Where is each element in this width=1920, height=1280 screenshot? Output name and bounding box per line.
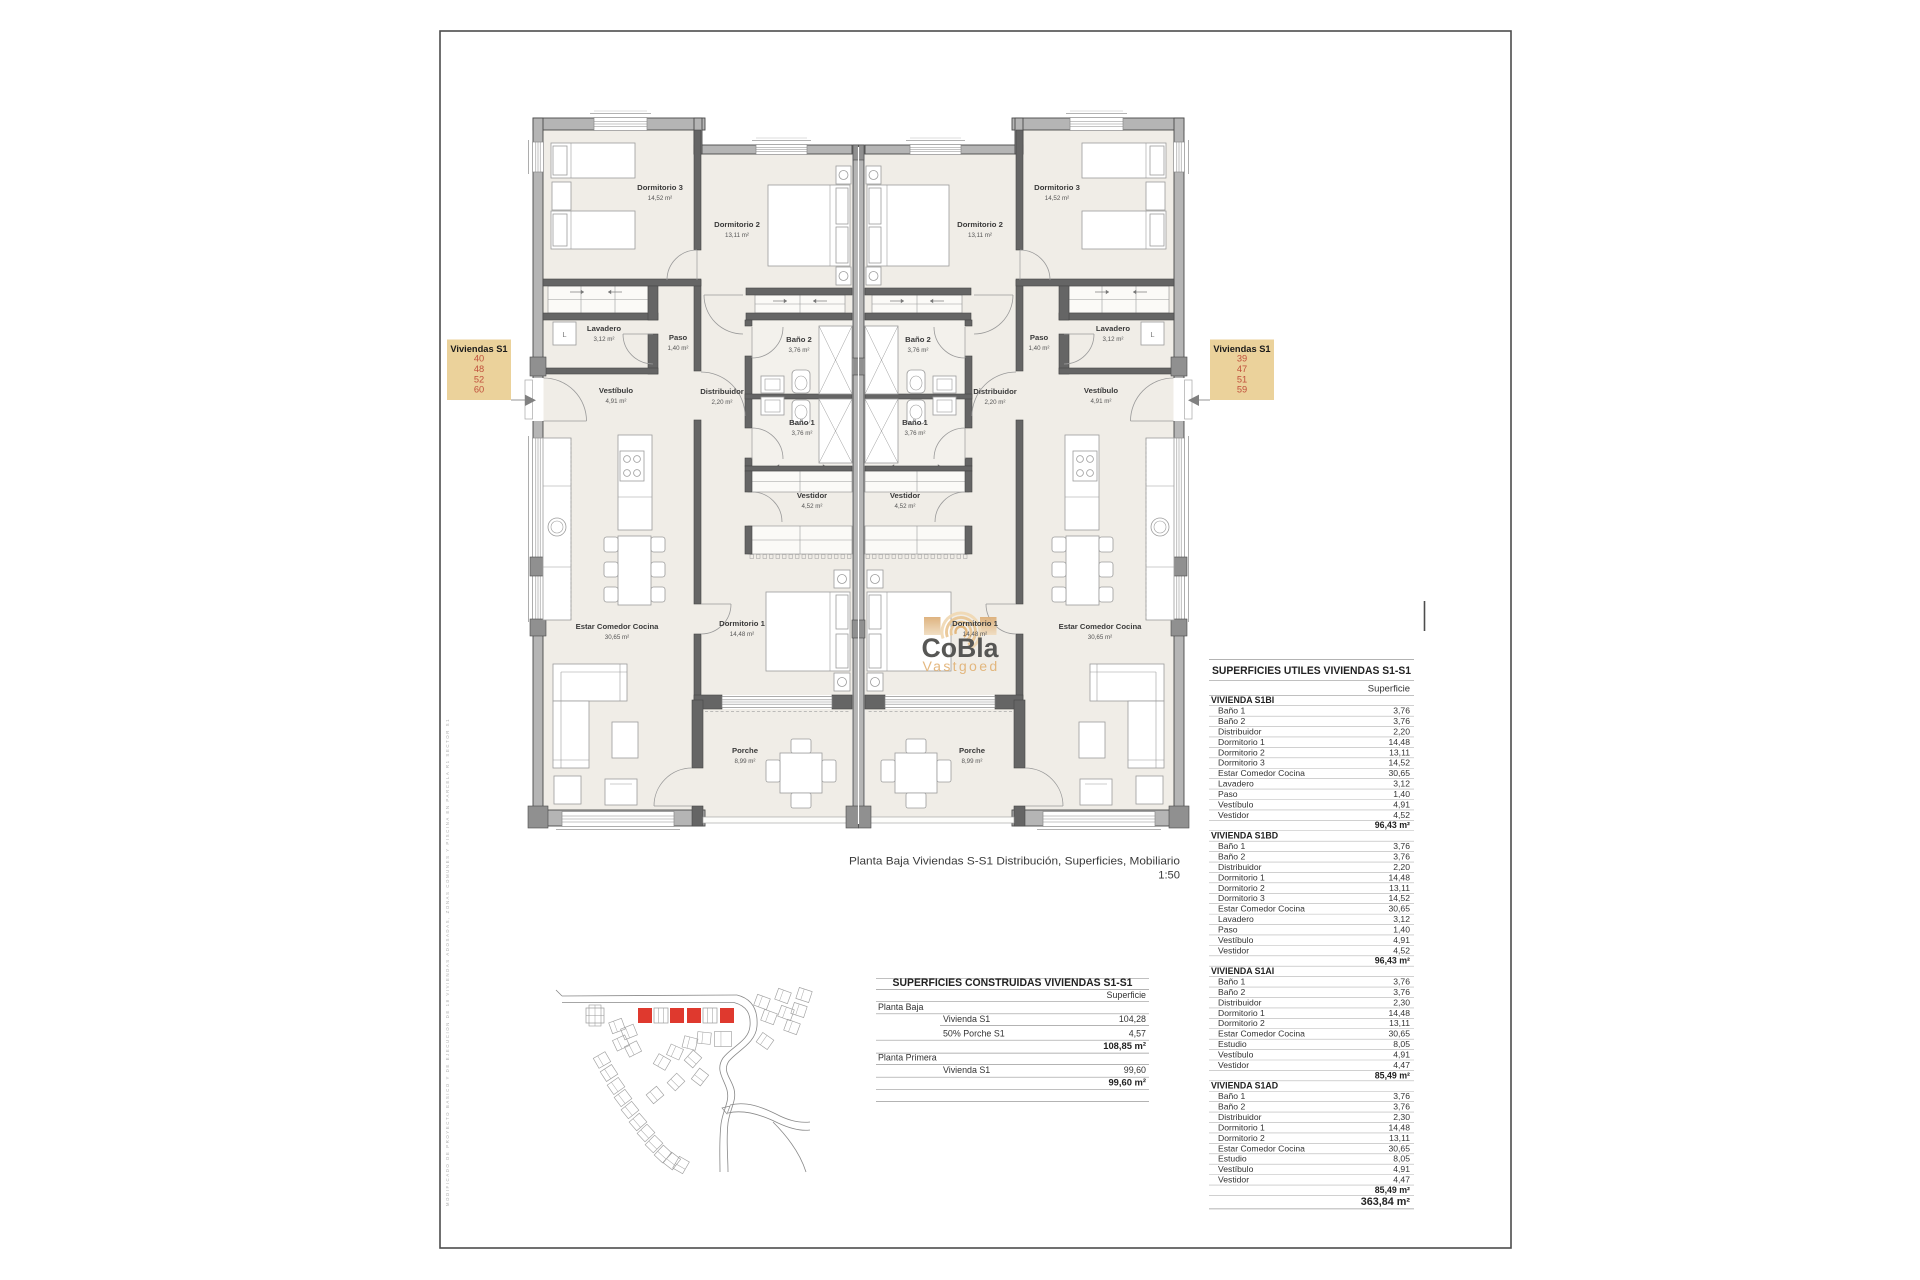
svg-text:14,48 m²: 14,48 m²	[730, 631, 754, 638]
svg-text:8,99 m²: 8,99 m²	[962, 758, 983, 765]
svg-text:3,76 m²: 3,76 m²	[905, 430, 926, 437]
svg-text:4,52 m²: 4,52 m²	[895, 503, 916, 510]
svg-text:Dormitorio 1: Dormitorio 1	[1218, 1008, 1265, 1018]
svg-text:Distribuidor: Distribuidor	[700, 387, 744, 396]
svg-text:L: L	[1150, 330, 1154, 339]
svg-text:1,40: 1,40	[1393, 789, 1410, 799]
svg-text:Vestidor: Vestidor	[1218, 810, 1249, 820]
svg-text:Estudio: Estudio	[1218, 1154, 1247, 1164]
svg-text:13,11: 13,11	[1389, 1018, 1410, 1028]
svg-text:4,91: 4,91	[1393, 1164, 1410, 1174]
svg-text:4,57: 4,57	[1129, 1028, 1146, 1038]
svg-text:4,52: 4,52	[1393, 945, 1410, 955]
svg-text:Superficie: Superficie	[1107, 990, 1147, 1000]
svg-text:Vestidor: Vestidor	[1218, 1175, 1249, 1185]
svg-text:Viviendas S1: Viviendas S1	[1213, 344, 1270, 354]
svg-text:Estar Comedor Cocina: Estar Comedor Cocina	[576, 622, 660, 631]
svg-text:3,76 m²: 3,76 m²	[792, 430, 813, 437]
svg-text:Baño 2: Baño 2	[1218, 1102, 1245, 1112]
svg-text:Lavadero: Lavadero	[1096, 324, 1130, 333]
svg-text:3,76: 3,76	[1393, 841, 1410, 851]
svg-text:30,65: 30,65	[1388, 904, 1410, 914]
svg-text:VIVIENDA S1BI: VIVIENDA S1BI	[1211, 695, 1274, 705]
svg-text:96,43 m²: 96,43 m²	[1375, 956, 1410, 966]
svg-text:3,12: 3,12	[1393, 779, 1410, 789]
svg-text:Vestíbulo: Vestíbulo	[599, 386, 633, 395]
svg-text:Superficie: Superficie	[1368, 684, 1410, 695]
svg-text:Vestíbulo: Vestíbulo	[1218, 935, 1254, 945]
svg-text:14,48: 14,48	[1388, 872, 1410, 882]
svg-text:Dormitorio 3: Dormitorio 3	[1034, 183, 1080, 192]
svg-text:3,76: 3,76	[1393, 706, 1410, 716]
svg-text:Porche: Porche	[959, 746, 986, 755]
svg-text:Vestíbulo: Vestíbulo	[1084, 386, 1118, 395]
svg-text:1:50: 1:50	[1158, 870, 1180, 882]
svg-text:Vivienda S1: Vivienda S1	[943, 1065, 990, 1075]
svg-text:Vestidor: Vestidor	[1218, 1060, 1249, 1070]
svg-text:Paso: Paso	[1030, 333, 1049, 342]
svg-text:13,11 m²: 13,11 m²	[968, 232, 992, 239]
svg-text:1,40 m²: 1,40 m²	[1029, 345, 1050, 352]
svg-text:4,91 m²: 4,91 m²	[606, 398, 627, 405]
svg-text:Dormitorio 1: Dormitorio 1	[1218, 1122, 1265, 1132]
svg-text:Lavadero: Lavadero	[1218, 779, 1254, 789]
svg-text:8,99 m²: 8,99 m²	[735, 758, 756, 765]
svg-text:VIVIENDA S1AI: VIVIENDA S1AI	[1211, 966, 1274, 976]
svg-text:Distribuidor: Distribuidor	[1218, 862, 1262, 872]
svg-text:30,65: 30,65	[1388, 1029, 1410, 1039]
svg-text:Paso: Paso	[1218, 789, 1238, 799]
svg-text:14,48 m²: 14,48 m²	[963, 631, 987, 638]
svg-text:Baño 2: Baño 2	[905, 335, 931, 344]
svg-text:14,52 m²: 14,52 m²	[648, 195, 672, 202]
svg-text:48: 48	[474, 364, 484, 374]
svg-text:Baño 1: Baño 1	[1218, 1091, 1245, 1101]
svg-text:60: 60	[474, 385, 484, 395]
svg-text:30,65 m²: 30,65 m²	[1088, 634, 1112, 641]
svg-text:Viviendas S1: Viviendas S1	[450, 344, 507, 354]
svg-text:96,43 m²: 96,43 m²	[1375, 820, 1410, 830]
svg-text:3,76: 3,76	[1393, 977, 1410, 987]
svg-text:Estar Comedor Cocina: Estar Comedor Cocina	[1218, 768, 1305, 778]
svg-text:99,60 m²: 99,60 m²	[1108, 1076, 1146, 1087]
svg-text:Vestidor: Vestidor	[1218, 945, 1249, 955]
svg-text:Baño 2: Baño 2	[1218, 852, 1245, 862]
svg-text:Vestíbulo: Vestíbulo	[1218, 799, 1254, 809]
svg-text:Distribuidor: Distribuidor	[1218, 997, 1262, 1007]
svg-text:104,28: 104,28	[1119, 1014, 1146, 1024]
svg-text:3,76 m²: 3,76 m²	[908, 347, 929, 354]
svg-text:3,12 m²: 3,12 m²	[594, 336, 615, 343]
svg-text:13,11: 13,11	[1389, 883, 1410, 893]
svg-text:14,48: 14,48	[1388, 1122, 1410, 1132]
svg-text:85,49 m²: 85,49 m²	[1375, 1070, 1410, 1080]
svg-text:Dormitorio 1: Dormitorio 1	[952, 619, 998, 628]
svg-text:4,52: 4,52	[1393, 810, 1410, 820]
svg-text:Dormitorio 2: Dormitorio 2	[1218, 747, 1265, 757]
svg-text:Paso: Paso	[669, 333, 688, 342]
svg-text:MODIFICADO DE PROYECTO BASICO: MODIFICADO DE PROYECTO BASICO Y DE EJECU…	[445, 718, 450, 1206]
svg-text:50% Porche S1: 50% Porche S1	[943, 1028, 1005, 1038]
svg-text:Baño 2: Baño 2	[1218, 716, 1245, 726]
svg-text:13,11: 13,11	[1389, 747, 1410, 757]
svg-text:Porche: Porche	[732, 746, 759, 755]
svg-text:2,20 m²: 2,20 m²	[985, 399, 1006, 406]
svg-text:Vestíbulo: Vestíbulo	[1218, 1049, 1254, 1059]
svg-text:Baño 1: Baño 1	[1218, 977, 1245, 987]
svg-text:52: 52	[474, 374, 484, 384]
svg-text:Dormitorio 3: Dormitorio 3	[1218, 893, 1265, 903]
svg-text:VIVIENDA S1AD: VIVIENDA S1AD	[1211, 1080, 1278, 1090]
svg-text:8,05: 8,05	[1393, 1039, 1410, 1049]
svg-text:Dormitorio 2: Dormitorio 2	[1218, 1133, 1265, 1143]
svg-text:Estar Comedor Cocina: Estar Comedor Cocina	[1218, 1143, 1305, 1153]
svg-text:4,52 m²: 4,52 m²	[802, 503, 823, 510]
svg-text:Planta Baja: Planta Baja	[878, 1002, 923, 1012]
svg-text:13,11: 13,11	[1389, 1133, 1410, 1143]
svg-text:2,20: 2,20	[1393, 862, 1410, 872]
svg-text:Baño 1: Baño 1	[902, 418, 928, 427]
svg-text:4,91 m²: 4,91 m²	[1091, 398, 1112, 405]
svg-text:Dormitorio 1: Dormitorio 1	[1218, 737, 1265, 747]
svg-text:VIVIENDA S1BD: VIVIENDA S1BD	[1211, 830, 1278, 840]
svg-text:1,40: 1,40	[1393, 924, 1410, 934]
svg-text:Vestidor: Vestidor	[797, 491, 827, 500]
svg-text:3,76: 3,76	[1393, 1091, 1410, 1101]
svg-text:4,91: 4,91	[1393, 1049, 1410, 1059]
svg-text:Distribuidor: Distribuidor	[973, 387, 1017, 396]
svg-text:3,76: 3,76	[1393, 987, 1410, 997]
svg-text:Baño 2: Baño 2	[786, 335, 812, 344]
svg-text:Dormitorio 2: Dormitorio 2	[957, 220, 1003, 229]
svg-text:Vivienda S1: Vivienda S1	[943, 1014, 990, 1024]
svg-text:30,65: 30,65	[1388, 1143, 1410, 1153]
svg-text:1,40 m²: 1,40 m²	[668, 345, 689, 352]
svg-text:4,91: 4,91	[1393, 799, 1410, 809]
svg-text:Baño 2: Baño 2	[1218, 987, 1245, 997]
svg-text:Lavadero: Lavadero	[587, 324, 621, 333]
svg-text:14,52: 14,52	[1388, 758, 1410, 768]
svg-text:Estar Comedor Cocina: Estar Comedor Cocina	[1059, 622, 1143, 631]
svg-text:SUPERFICIES UTILES VIVIENDAS S: SUPERFICIES UTILES VIVIENDAS S1-S1	[1212, 665, 1411, 677]
svg-text:108,85 m²: 108,85 m²	[1103, 1040, 1146, 1051]
svg-text:Paso: Paso	[1218, 924, 1238, 934]
svg-text:Planta Baja Viviendas S-S1 Dis: Planta Baja Viviendas S-S1 Distribución,…	[849, 856, 1180, 868]
svg-text:2,20 m²: 2,20 m²	[712, 399, 733, 406]
svg-text:Dormitorio 2: Dormitorio 2	[714, 220, 760, 229]
svg-text:4,91: 4,91	[1393, 935, 1410, 945]
svg-text:59: 59	[1237, 385, 1247, 395]
svg-text:SUPERFICIES CONSTRUIDAS VIVIEN: SUPERFICIES CONSTRUIDAS VIVIENDAS S1-S1	[893, 977, 1133, 989]
svg-text:3,76 m²: 3,76 m²	[789, 347, 810, 354]
svg-text:39: 39	[1237, 354, 1247, 364]
svg-text:8,05: 8,05	[1393, 1154, 1410, 1164]
svg-text:3,12 m²: 3,12 m²	[1103, 336, 1124, 343]
svg-text:Dormitorio 3: Dormitorio 3	[637, 183, 683, 192]
svg-text:14,48: 14,48	[1388, 1008, 1410, 1018]
svg-text:Estudio: Estudio	[1218, 1039, 1247, 1049]
svg-text:Dormitorio 1: Dormitorio 1	[1218, 872, 1265, 882]
svg-text:40: 40	[474, 354, 484, 364]
svg-text:14,48: 14,48	[1388, 737, 1410, 747]
svg-text:14,52: 14,52	[1388, 893, 1410, 903]
svg-text:47: 47	[1237, 364, 1247, 374]
svg-text:3,76: 3,76	[1393, 716, 1410, 726]
svg-text:Dormitorio 3: Dormitorio 3	[1218, 758, 1265, 768]
svg-text:4,47: 4,47	[1393, 1060, 1410, 1070]
svg-text:Baño 1: Baño 1	[1218, 841, 1245, 851]
svg-text:Dormitorio 1: Dormitorio 1	[719, 619, 765, 628]
svg-text:4,47: 4,47	[1393, 1175, 1410, 1185]
svg-text:Distribuidor: Distribuidor	[1218, 726, 1262, 736]
svg-text:30,65: 30,65	[1388, 768, 1410, 778]
svg-text:2,30: 2,30	[1393, 1112, 1410, 1122]
svg-text:Baño 1: Baño 1	[1218, 706, 1245, 716]
svg-text:3,12: 3,12	[1393, 914, 1410, 924]
svg-text:Vastgoed: Vastgoed	[923, 659, 1000, 674]
svg-text:Vestidor: Vestidor	[890, 491, 920, 500]
svg-text:51: 51	[1237, 374, 1247, 384]
svg-text:Vestíbulo: Vestíbulo	[1218, 1164, 1254, 1174]
svg-text:Dormitorio 2: Dormitorio 2	[1218, 1018, 1265, 1028]
svg-text:3,76: 3,76	[1393, 1102, 1410, 1112]
svg-text:2,30: 2,30	[1393, 997, 1410, 1007]
svg-text:Estar Comedor Cocina: Estar Comedor Cocina	[1218, 1029, 1305, 1039]
svg-text:30,65 m²: 30,65 m²	[605, 634, 629, 641]
svg-text:Lavadero: Lavadero	[1218, 914, 1254, 924]
svg-text:Distribuidor: Distribuidor	[1218, 1112, 1262, 1122]
svg-text:363,84 m²: 363,84 m²	[1361, 1196, 1411, 1208]
svg-text:2,20: 2,20	[1393, 726, 1410, 736]
svg-text:85,49 m²: 85,49 m²	[1375, 1185, 1410, 1195]
svg-text:Dormitorio 2: Dormitorio 2	[1218, 883, 1265, 893]
svg-text:14,52 m²: 14,52 m²	[1045, 195, 1069, 202]
svg-text:L: L	[562, 330, 566, 339]
svg-text:3,76: 3,76	[1393, 852, 1410, 862]
svg-text:Baño 1: Baño 1	[789, 418, 815, 427]
svg-text:Estar Comedor Cocina: Estar Comedor Cocina	[1218, 904, 1305, 914]
svg-text:Planta Primera: Planta Primera	[878, 1053, 937, 1063]
svg-text:13,11 m²: 13,11 m²	[725, 232, 749, 239]
svg-text:99,60: 99,60	[1124, 1065, 1146, 1075]
